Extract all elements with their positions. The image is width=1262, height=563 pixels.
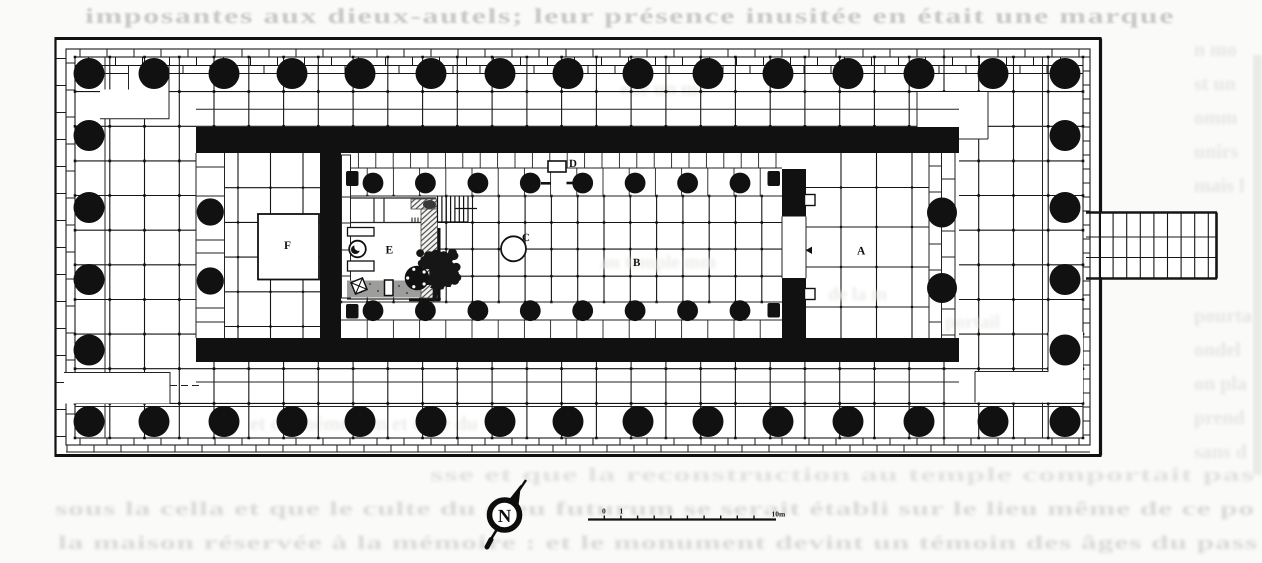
svg-text:D: D bbox=[569, 158, 577, 170]
svg-text:pourta: pourta bbox=[1194, 305, 1252, 327]
svg-text:prend: prend bbox=[1194, 407, 1245, 429]
svg-text:mais l: mais l bbox=[1194, 175, 1245, 197]
svg-text:on pla: on pla bbox=[1194, 373, 1247, 395]
svg-text:sous la cella et que le culte: sous la cella et que le culte du dieu fu… bbox=[55, 499, 1255, 520]
svg-text:E: E bbox=[386, 245, 394, 257]
svg-text:sse et que la reconstruction a: sse et que la reconstruction au temple c… bbox=[430, 465, 1255, 486]
svg-text:st un: st un bbox=[1194, 73, 1236, 95]
svg-text:sans d: sans d bbox=[1194, 441, 1247, 463]
svg-text:de la m: de la m bbox=[828, 284, 887, 305]
svg-text:A: A bbox=[857, 246, 866, 258]
svg-text:n mo: n mo bbox=[1194, 39, 1237, 61]
svg-text:unirs: unirs bbox=[1194, 141, 1239, 163]
svg-text:au temple mm: au temple mm bbox=[600, 252, 716, 273]
svg-text:N: N bbox=[498, 507, 512, 527]
svg-text:F: F bbox=[284, 240, 291, 252]
svg-text:B: B bbox=[633, 257, 641, 269]
svg-text:portail: portail bbox=[945, 312, 1000, 333]
svg-text:ondel: ondel bbox=[1194, 339, 1241, 361]
svg-text:omm: omm bbox=[1194, 107, 1238, 129]
svg-text:10m: 10m bbox=[772, 510, 787, 519]
svg-text:C: C bbox=[522, 232, 530, 244]
svg-text:1: 1 bbox=[620, 507, 624, 516]
svg-text:0: 0 bbox=[602, 507, 606, 516]
svg-text:imposantes aux dieux-autels; l: imposantes aux dieux-autels; leur présen… bbox=[85, 4, 1175, 28]
svg-text:la maison réservée à la mémoir: la maison réservée à la mémoire : et le … bbox=[58, 533, 1258, 554]
